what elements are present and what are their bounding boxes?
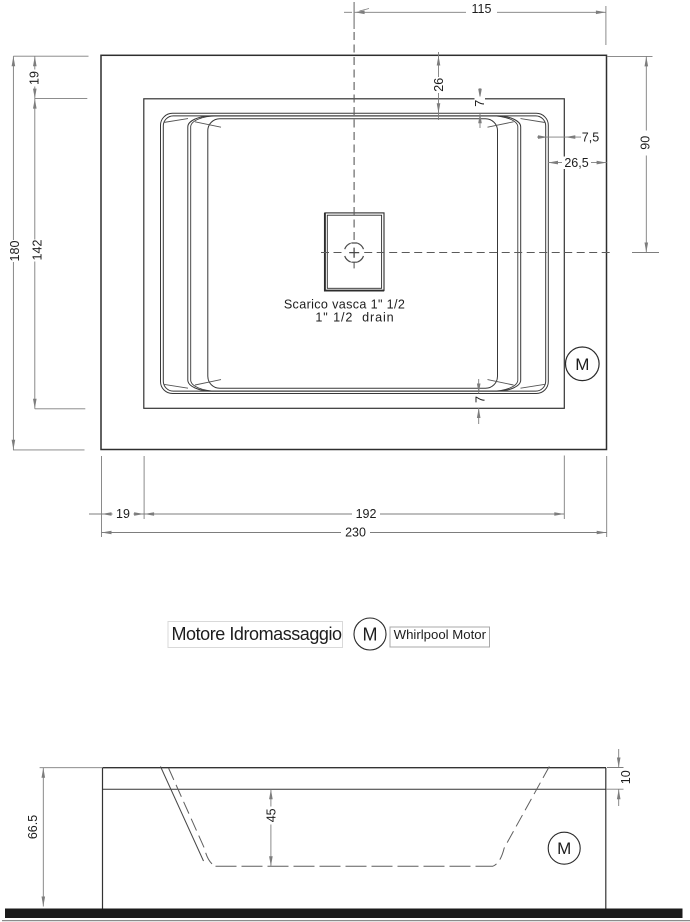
svg-text:7: 7 [473,100,487,107]
svg-text:45: 45 [265,808,279,822]
svg-text:90: 90 [639,136,653,150]
svg-text:230: 230 [345,526,366,540]
svg-text:26,5: 26,5 [564,156,588,170]
svg-text:7: 7 [473,396,487,403]
svg-text:M: M [363,625,378,645]
svg-text:19: 19 [116,507,130,521]
svg-text:1" 1/2 drain: 1" 1/2 drain [315,311,394,325]
svg-text:66.5: 66.5 [26,815,40,839]
svg-text:7,5: 7,5 [582,131,599,145]
svg-text:115: 115 [472,2,492,16]
svg-text:26: 26 [432,78,446,92]
svg-text:180: 180 [8,241,22,262]
svg-text:192: 192 [356,507,377,521]
svg-text:10: 10 [619,770,633,784]
svg-text:Whirlpool Motor: Whirlpool Motor [394,627,487,642]
svg-text:Scarico vasca 1" 1/2: Scarico vasca 1" 1/2 [284,298,405,312]
svg-text:M: M [557,839,571,858]
svg-text:142: 142 [30,240,44,261]
svg-text:19: 19 [28,71,42,85]
svg-text:M: M [575,355,589,374]
svg-text:Motore Idromassaggio: Motore Idromassaggio [172,624,343,644]
